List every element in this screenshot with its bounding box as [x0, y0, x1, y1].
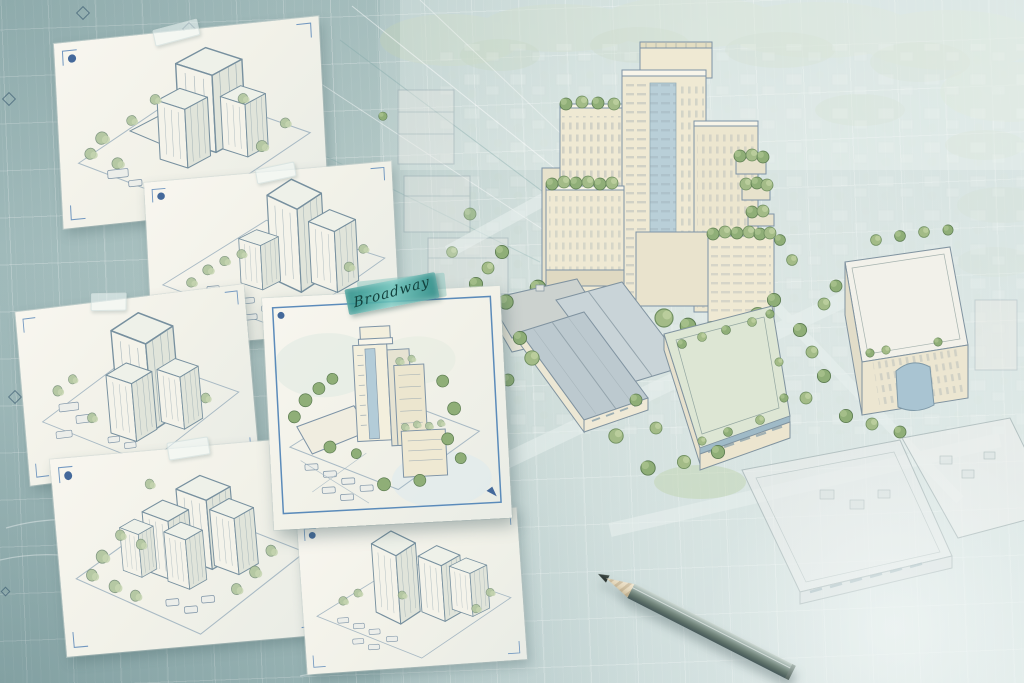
sketch-paper-concept-5 [297, 508, 527, 675]
pencil-lead-tip [596, 570, 609, 582]
architectural-collage-scene: Broadway [0, 0, 1024, 683]
tape-piece [91, 292, 127, 311]
featured-sketch-paper: Broadway [262, 286, 512, 530]
